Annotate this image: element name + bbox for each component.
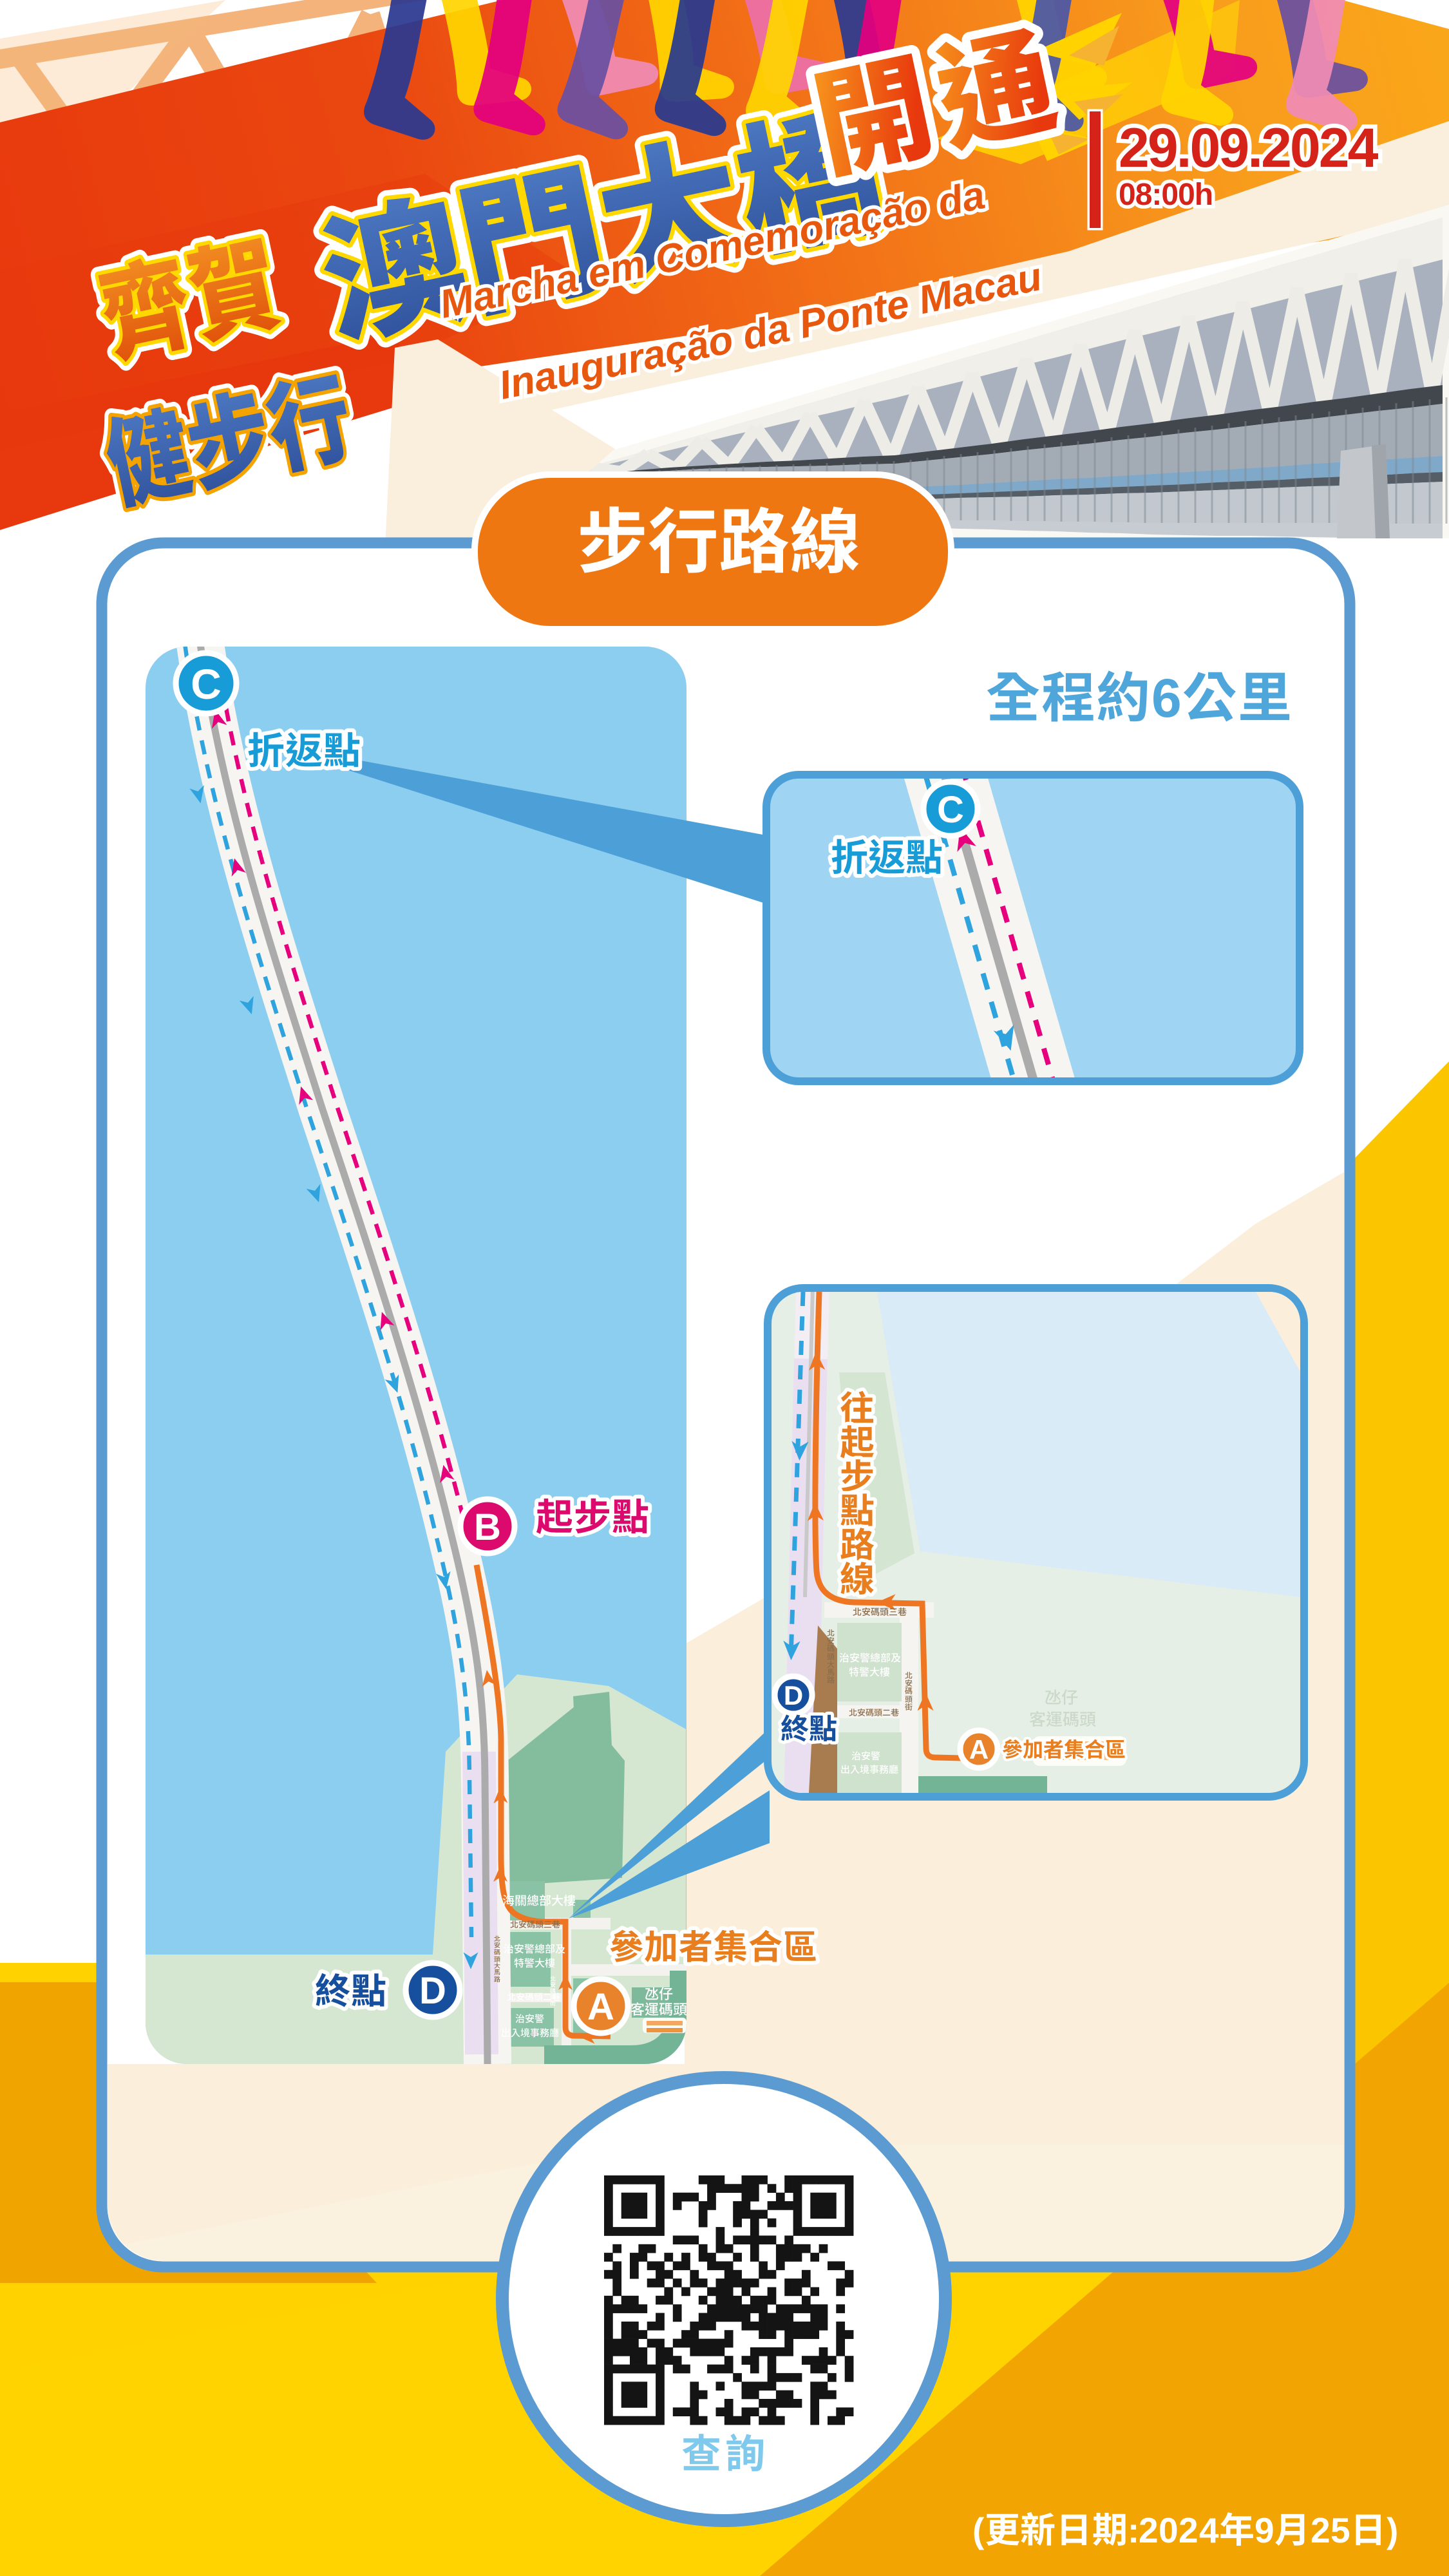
svg-text:0: 0 — [1159, 2510, 1179, 2550]
svg-text:): ) — [1387, 2510, 1398, 2550]
svg-text:6: 6 — [1151, 668, 1182, 728]
svg-text:4: 4 — [1199, 2510, 1219, 2550]
svg-text:2: 2 — [1311, 2510, 1331, 2550]
svg-text::: : — [1128, 2510, 1139, 2550]
svg-text:C: C — [937, 789, 964, 831]
svg-text:D: D — [419, 1970, 446, 2012]
svg-text:C: C — [191, 660, 222, 708]
svg-text:2: 2 — [1179, 2510, 1198, 2550]
svg-text:08:00h: 08:00h — [1119, 178, 1213, 212]
svg-text:2: 2 — [1139, 2510, 1159, 2550]
svg-text:29.09.2024: 29.09.2024 — [1119, 117, 1379, 179]
svg-text:A: A — [587, 1986, 614, 2028]
svg-text:5: 5 — [1331, 2510, 1350, 2550]
svg-text:D: D — [784, 1680, 803, 1710]
svg-text:A: A — [969, 1734, 989, 1765]
svg-text:9: 9 — [1255, 2510, 1274, 2550]
svg-text:(: ( — [972, 2510, 985, 2550]
svg-text:B: B — [474, 1506, 501, 1548]
